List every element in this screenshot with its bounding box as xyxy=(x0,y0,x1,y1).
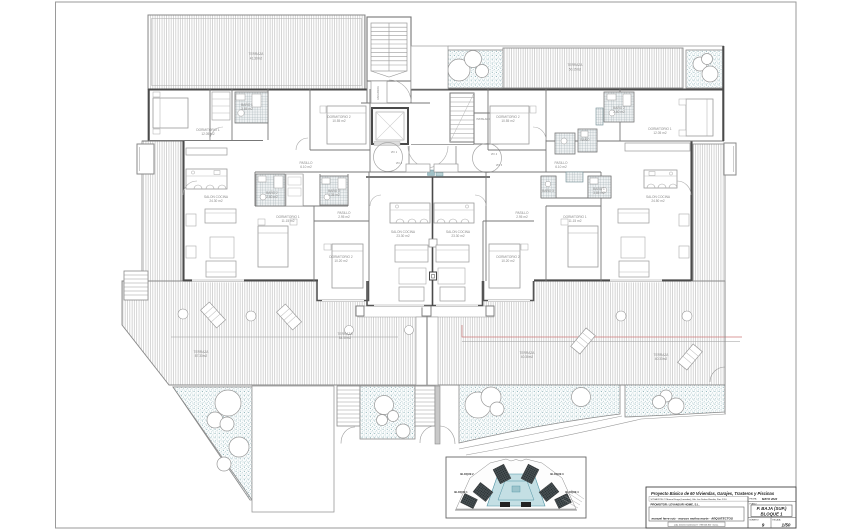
svg-text:BAÑO: BAÑO xyxy=(580,137,590,142)
svg-text:6.10 m2: 6.10 m2 xyxy=(300,165,312,169)
svg-text:BLOQUE 2: BLOQUE 2 xyxy=(460,472,474,476)
svg-text:12.05 m2: 12.05 m2 xyxy=(653,131,667,135)
svg-text:2.35 m2: 2.35 m2 xyxy=(328,193,340,197)
svg-text:11.15 m2: 11.15 m2 xyxy=(281,219,294,223)
svg-text:FECHA:: FECHA: xyxy=(750,498,758,501)
svg-text:6.10 m2: 6.10 m2 xyxy=(555,165,567,169)
svg-text:ASCENSOR: ASCENSOR xyxy=(377,86,380,100)
svg-text:NÚMERO:: NÚMERO: xyxy=(750,519,760,522)
svg-text:23.30 m2: 23.30 m2 xyxy=(396,234,410,238)
svg-text:12.05 m2: 12.05 m2 xyxy=(201,132,215,136)
svg-text:VIV. 2: VIV. 2 xyxy=(396,162,403,165)
svg-text:87.30m2: 87.30m2 xyxy=(195,354,208,358)
svg-text:40.30m2: 40.30m2 xyxy=(655,357,668,361)
svg-text:2.60 m2: 2.60 m2 xyxy=(266,195,278,199)
svg-text:BLOQUE 4: BLOQUE 4 xyxy=(565,490,579,494)
svg-text:10.20 m2: 10.20 m2 xyxy=(334,259,348,263)
svg-text:VIV. 1: VIV. 1 xyxy=(391,151,398,154)
svg-text:BLOQUE 1: BLOQUE 1 xyxy=(454,490,468,494)
svg-text:VIV. 3: VIV. 3 xyxy=(496,164,503,167)
svg-text:BLOQUE 3: BLOQUE 3 xyxy=(550,472,564,476)
svg-text:manuel ferre ruiz - marcos mol: manuel ferre ruiz - marcos molina marín … xyxy=(652,517,733,521)
svg-text:11.15 m2: 11.15 m2 xyxy=(568,219,581,223)
svg-text:Proyecto Básico de 60 Vivienda: Proyecto Básico de 60 Viviendas, Garajes… xyxy=(651,491,775,496)
svg-text:24.30 m2: 24.30 m2 xyxy=(209,199,223,203)
svg-text:BAÑO 3: BAÑO 3 xyxy=(542,188,554,193)
svg-text:TERRAZA: TERRAZA xyxy=(568,63,584,67)
svg-text:3.85 m2: 3.85 m2 xyxy=(241,107,253,111)
svg-text:40.30m2: 40.30m2 xyxy=(521,355,534,359)
svg-text:1/50: 1/50 xyxy=(782,523,791,528)
svg-text:84.50m2: 84.50m2 xyxy=(339,336,352,340)
svg-text:VIV. 4: VIV. 4 xyxy=(491,153,498,156)
svg-text:41.30m2: 41.30m2 xyxy=(250,57,263,61)
svg-text:3.85 m2: 3.85 m2 xyxy=(593,191,605,195)
svg-text:P. BAJA (SUP.): P. BAJA (SUP.) xyxy=(757,506,787,511)
svg-text:10.55 m2: 10.55 m2 xyxy=(332,119,346,123)
svg-text:2.95 m2: 2.95 m2 xyxy=(516,215,528,219)
svg-text:PROMOTOR: LEVANSUR HOME, S.L.: PROMOTOR: LEVANSUR HOME, S.L. xyxy=(651,503,700,507)
svg-text:2.95 m2: 2.95 m2 xyxy=(338,215,350,219)
svg-text:10.20 m2: 10.20 m2 xyxy=(501,259,515,263)
svg-text:TERRAZA: TERRAZA xyxy=(249,52,265,56)
svg-text:ESCALA:: ESCALA: xyxy=(773,519,782,522)
svg-text:50.15m2: 50.15m2 xyxy=(569,68,582,72)
svg-text:2.60 m2: 2.60 m2 xyxy=(613,110,625,114)
svg-text:avda. teniente montesinos 8 ·: avda. teniente montesinos 8 · t 968 123 … xyxy=(674,523,719,526)
svg-text:BLOQUE 1: BLOQUE 1 xyxy=(761,511,784,516)
svg-text:10.55 m2: 10.55 m2 xyxy=(501,119,515,123)
svg-text:23.30 m2: 23.30 m2 xyxy=(451,234,465,238)
svg-text:SITUACIÓN: C/ Manuel Fraga (L: SITUACIÓN: C/ Manuel Fraga (Lomadas), Ur… xyxy=(651,498,728,501)
svg-text:24.50 m2: 24.50 m2 xyxy=(651,199,665,203)
svg-text:MAYO 2022: MAYO 2022 xyxy=(762,497,778,501)
svg-text:9: 9 xyxy=(762,523,765,528)
